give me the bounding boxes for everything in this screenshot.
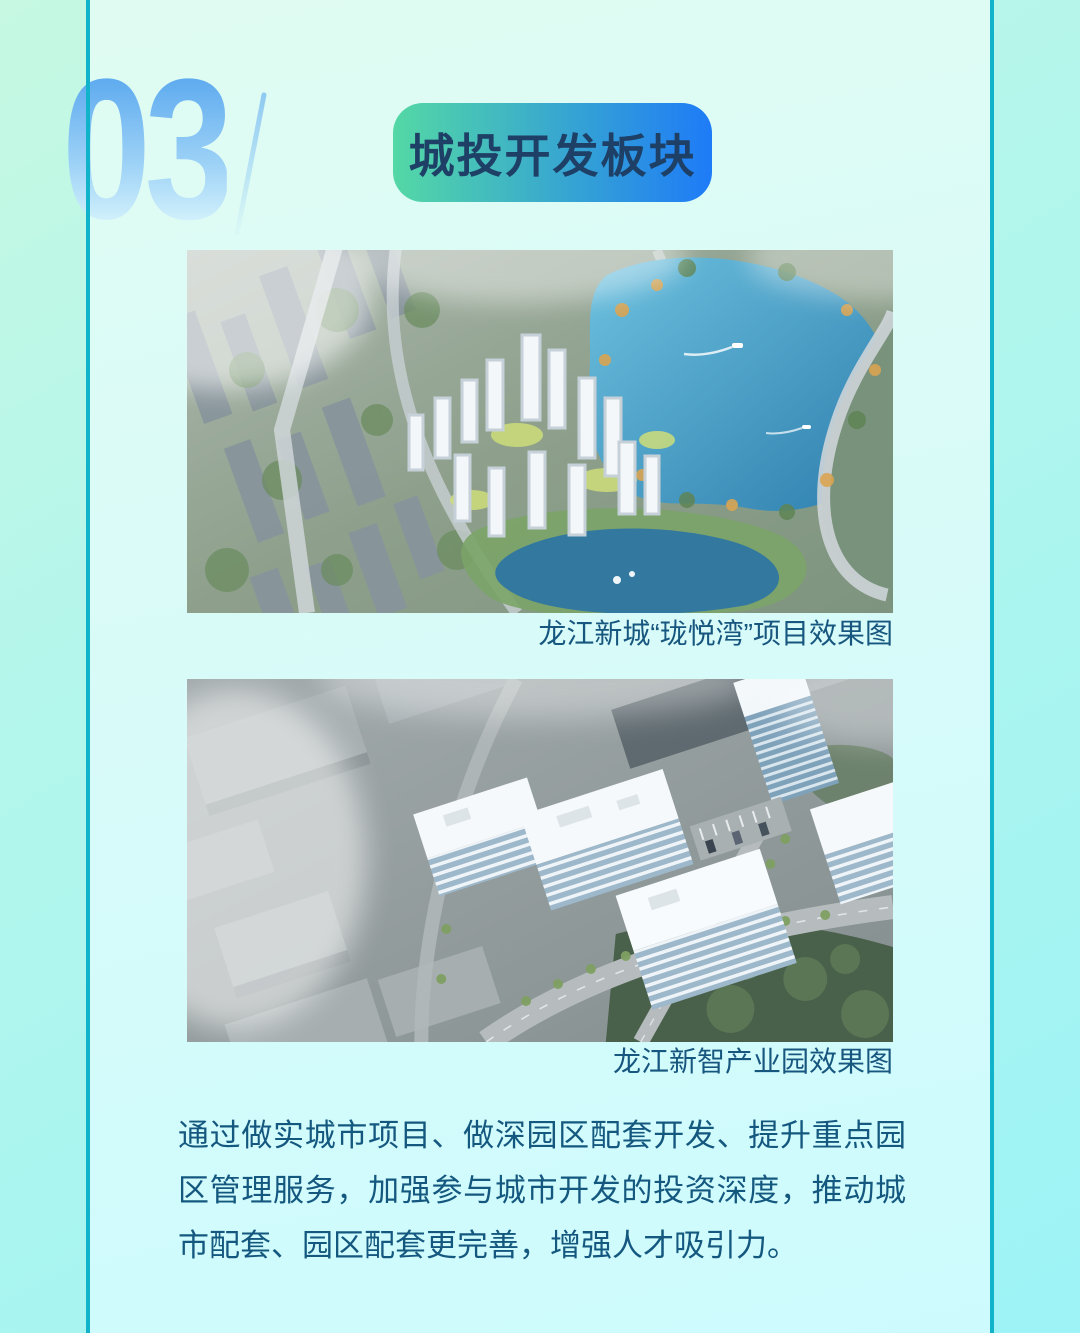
body-paragraph: 通过做实城市项目、做深园区配套开发、提升重点园区管理服务，加强参与城市开发的投资…	[178, 1108, 906, 1273]
right-border-line	[990, 0, 994, 1333]
figure-industrial-park-render	[187, 679, 893, 1042]
section-title: 城投开发板块	[409, 120, 697, 186]
aerial-render-campus-illustration	[187, 679, 893, 1042]
figure-caption: 龙江新城“珑悦湾”项目效果图	[187, 617, 893, 651]
figure-caption: 龙江新智产业园效果图	[187, 1045, 893, 1079]
aerial-render-lake-illustration	[187, 250, 893, 613]
figure-longyuewan-render	[187, 250, 893, 613]
left-border-line	[86, 0, 90, 1333]
section-title-badge: 城投开发板块	[393, 103, 712, 202]
